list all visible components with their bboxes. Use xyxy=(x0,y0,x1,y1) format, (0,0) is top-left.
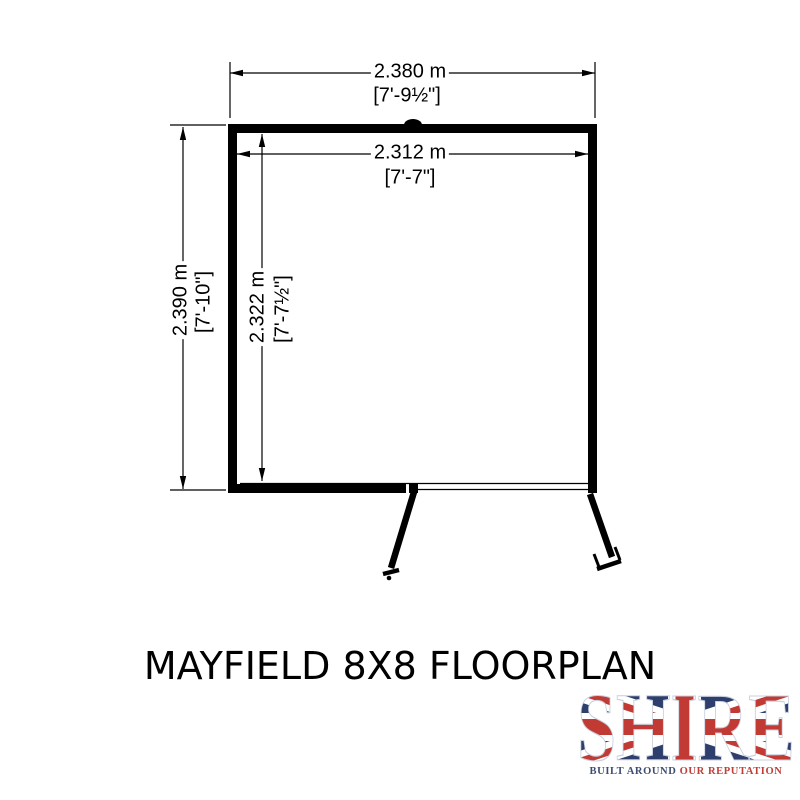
shire-logo-wordmark: SHIRE SHIRE xyxy=(572,684,800,768)
label-outer-width-metric: 2.380 m xyxy=(371,62,449,83)
door-right xyxy=(590,494,621,569)
logo-tagline: BUILT AROUND OUR REPUTATION xyxy=(572,766,800,777)
wall-left xyxy=(228,124,237,493)
floorplan-page: 2.380 m [7'-9½"] 2.312 m [7'-7"] 2.390 m… xyxy=(0,0,800,800)
wall-right xyxy=(588,124,597,493)
label-inner-width-metric: 2.312 m xyxy=(371,143,449,164)
page-title: MAYFIELD 8X8 FLOORPLAN xyxy=(0,644,800,688)
shire-logo: SHIRE SHIRE BUILT AROUND OUR REPUTATION xyxy=(572,684,800,777)
label-inner-height-metric: 2.322 m xyxy=(248,268,269,346)
door-left xyxy=(383,492,414,580)
label-inner-width-imperial: [7'-7"] xyxy=(382,168,439,189)
wall-bottom xyxy=(228,484,406,493)
tagline-left: BUILT AROUND xyxy=(590,766,677,777)
door-hinge-post xyxy=(409,484,418,493)
label-outer-height-metric: 2.390 m xyxy=(171,261,192,339)
label-outer-width-imperial: [7'-9½"] xyxy=(370,86,444,107)
tagline-right: OUR REPUTATION xyxy=(680,766,783,777)
logo-outline-text: SHIRE xyxy=(577,684,795,768)
label-inner-height-imperial: [7'-7½"] xyxy=(273,272,294,346)
wall-top xyxy=(228,124,597,133)
label-outer-height-imperial: [7'-10"] xyxy=(194,268,215,336)
